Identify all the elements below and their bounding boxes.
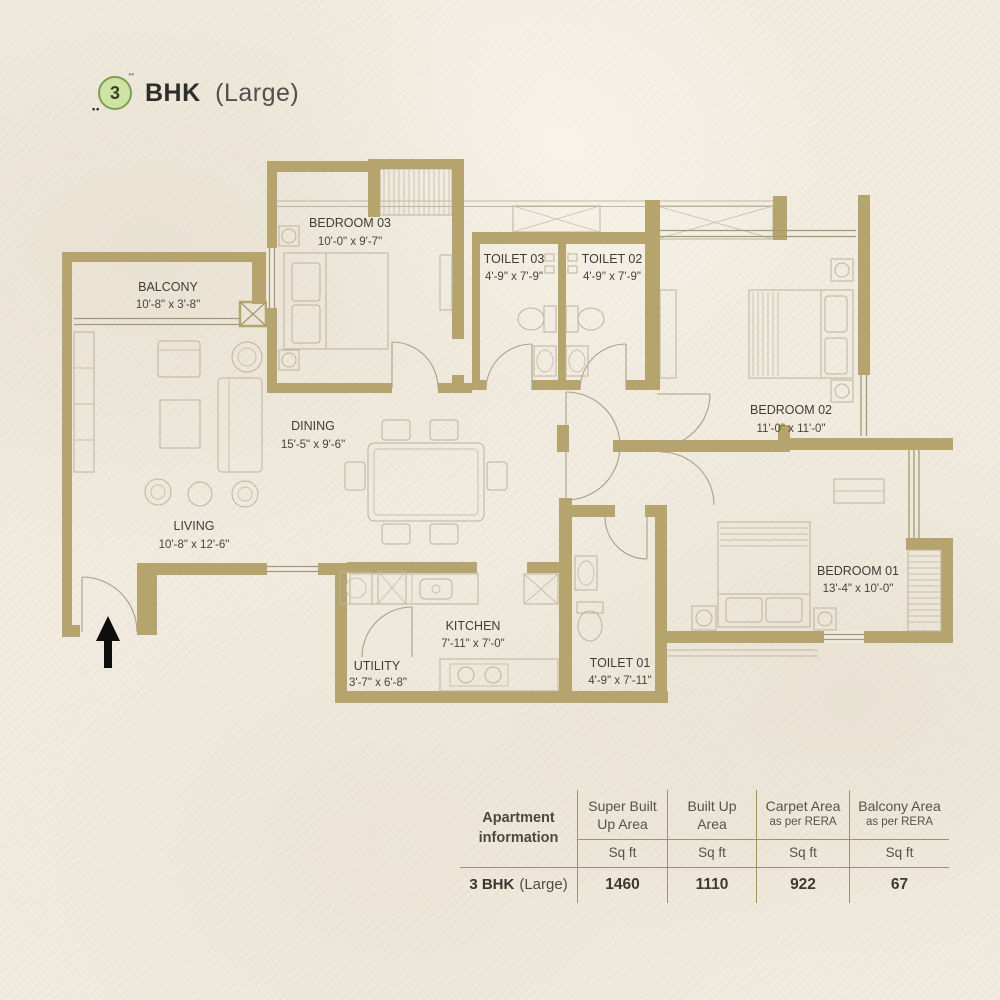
- room-dims-balcony: 10'-8" x 3'-8": [136, 299, 200, 311]
- table-unit-cell: Sq ft: [667, 840, 756, 868]
- table-value-balcony-area: 67: [849, 868, 949, 903]
- room-dims-bedroom03: 10'-0" x 9'-7": [318, 236, 382, 248]
- floor-plan: BEDROOM 03 10'-0" x 9'-7" BALCONY 10'-8"…: [0, 0, 1000, 780]
- room-dims-kitchen: 7'-11" x 7'-0": [441, 638, 504, 650]
- room-label-living: LIVING: [174, 519, 215, 533]
- table-header-apartment-info: Apartment information: [460, 790, 577, 868]
- room-label-toilet02: TOILET 02: [582, 252, 643, 266]
- table-unit-cell: Sq ft: [577, 840, 667, 868]
- toilet02-fixtures: [566, 306, 604, 376]
- table-row-label: 3 BHK (Large): [460, 868, 577, 903]
- room-labels: BEDROOM 03 10'-0" x 9'-7" BALCONY 10'-8"…: [136, 216, 899, 689]
- room-dims-bedroom02: 11'-0" x 11'-0": [756, 423, 825, 435]
- room-label-toilet01: TOILET 01: [590, 656, 651, 670]
- apartment-info-table: Apartment information Super Built Up Are…: [460, 790, 949, 903]
- windows: [74, 231, 919, 644]
- table-unit-cell: Sq ft: [849, 840, 949, 868]
- table-column-balcony-area: Balcony Area as per RERA: [849, 790, 949, 840]
- table-value-built-up: 1110: [667, 868, 756, 903]
- living-furniture: [74, 332, 262, 507]
- room-label-dining: DINING: [291, 419, 335, 433]
- entrance-arrow: [96, 616, 120, 668]
- room-label-kitchen: KITCHEN: [446, 619, 501, 633]
- table-unit-cell: Sq ft: [756, 840, 849, 868]
- room-label-utility: UTILITY: [354, 659, 401, 673]
- room-label-bedroom01: BEDROOM 01: [817, 564, 899, 578]
- bedroom02-furniture: [660, 259, 853, 402]
- toilet01-fixtures: [575, 556, 603, 641]
- room-dims-toilet01: 4'-9" x 7'-11": [588, 675, 651, 687]
- room-label-bedroom03: BEDROOM 03: [309, 216, 391, 230]
- wardrobe-niche: [908, 550, 941, 631]
- service-shaft: [380, 169, 773, 239]
- room-dims-toilet02: 4'-9" x 7'-9": [583, 271, 641, 283]
- room-dims-utility: 3'-7" x 6'-8": [349, 677, 407, 689]
- room-dims-living: 10'-8" x 12'-6": [159, 539, 230, 551]
- toilet03-fixtures: [518, 306, 556, 376]
- room-label-balcony: BALCONY: [138, 280, 198, 294]
- room-label-bedroom02: BEDROOM 02: [750, 403, 832, 417]
- room-dims-dining: 15'-5" x 9'-6": [281, 439, 345, 451]
- room-dims-bedroom01: 13'-4" x 10'-0": [823, 583, 894, 595]
- dining-furniture: [345, 420, 507, 544]
- floor-plan-page: { "title": { "number": "3", "name": "BHK…: [0, 0, 1000, 1000]
- room-dims-toilet03: 4'-9" x 7'-9": [485, 271, 543, 283]
- table-value-super-built-up: 1460: [577, 868, 667, 903]
- doors: [82, 342, 714, 657]
- bedroom01-furniture: [692, 479, 884, 630]
- table-value-carpet-area: 922: [756, 868, 849, 903]
- table-column-built-up: Built Up Area: [667, 790, 756, 840]
- table-column-carpet-area: Carpet Area as per RERA: [756, 790, 849, 840]
- table-column-super-built-up: Super Built Up Area: [577, 790, 667, 840]
- room-label-toilet03: TOILET 03: [484, 252, 545, 266]
